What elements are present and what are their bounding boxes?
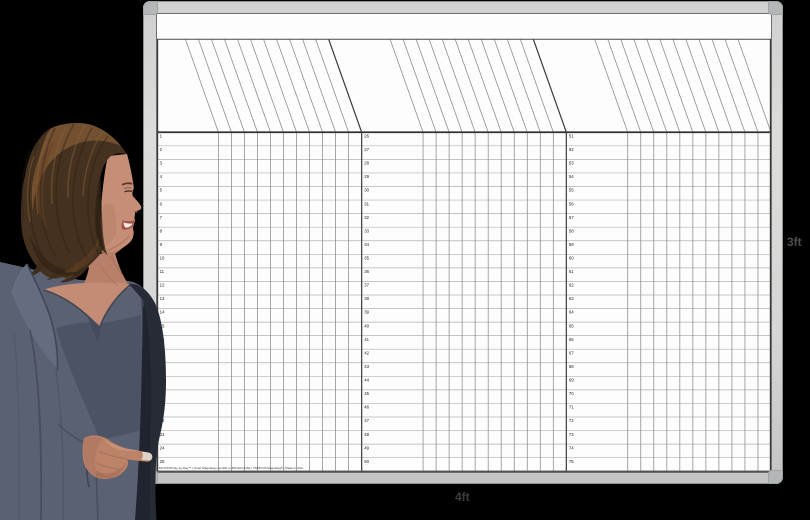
- svg-text:48: 48: [364, 431, 369, 436]
- svg-text:35: 35: [364, 255, 369, 260]
- svg-text:28: 28: [364, 160, 369, 165]
- svg-text:63: 63: [568, 296, 573, 301]
- svg-text:51: 51: [568, 133, 573, 138]
- svg-text:72: 72: [568, 418, 573, 423]
- svg-text:38: 38: [364, 296, 369, 301]
- svg-text:69: 69: [568, 377, 573, 382]
- svg-text:73: 73: [568, 431, 573, 436]
- svg-text:60: 60: [568, 255, 573, 260]
- svg-text:30: 30: [364, 187, 369, 192]
- svg-text:40: 40: [364, 323, 369, 328]
- svg-text:58: 58: [568, 228, 573, 233]
- svg-text:34: 34: [364, 241, 369, 246]
- svg-text:65: 65: [568, 323, 573, 328]
- svg-text:49: 49: [364, 445, 369, 450]
- svg-text:57: 57: [568, 214, 573, 219]
- svg-text:55: 55: [568, 187, 573, 192]
- svg-text:37: 37: [364, 282, 369, 287]
- svg-text:41: 41: [364, 336, 369, 341]
- svg-text:71: 71: [568, 404, 573, 409]
- svg-text:54: 54: [568, 174, 573, 179]
- svg-text:46: 46: [364, 404, 369, 409]
- svg-text:66: 66: [568, 336, 573, 341]
- svg-text:43: 43: [364, 363, 369, 368]
- svg-text:32: 32: [364, 214, 369, 219]
- svg-text:26: 26: [364, 133, 369, 138]
- svg-text:68: 68: [568, 363, 573, 368]
- svg-text:53: 53: [568, 160, 573, 165]
- svg-text:61: 61: [568, 269, 573, 274]
- svg-text:39: 39: [364, 309, 369, 314]
- svg-text:70: 70: [568, 391, 573, 396]
- svg-text:67: 67: [568, 350, 573, 355]
- svg-text:42: 42: [364, 350, 369, 355]
- svg-text:36: 36: [364, 269, 369, 274]
- svg-text:29: 29: [364, 174, 369, 179]
- svg-text:33: 33: [364, 228, 369, 233]
- svg-text:52: 52: [568, 147, 573, 152]
- svg-text:31: 31: [364, 201, 369, 206]
- svg-text:75: 75: [568, 458, 573, 463]
- svg-text:27: 27: [364, 147, 369, 152]
- svg-text:47: 47: [364, 418, 369, 423]
- svg-text:45: 45: [364, 391, 369, 396]
- svg-text:59: 59: [568, 241, 573, 246]
- svg-text:50: 50: [364, 458, 369, 463]
- svg-text:74: 74: [568, 445, 573, 450]
- svg-text:56: 56: [568, 201, 573, 206]
- svg-text:44: 44: [364, 377, 369, 382]
- svg-text:62: 62: [568, 282, 573, 287]
- svg-text:64: 64: [568, 309, 573, 314]
